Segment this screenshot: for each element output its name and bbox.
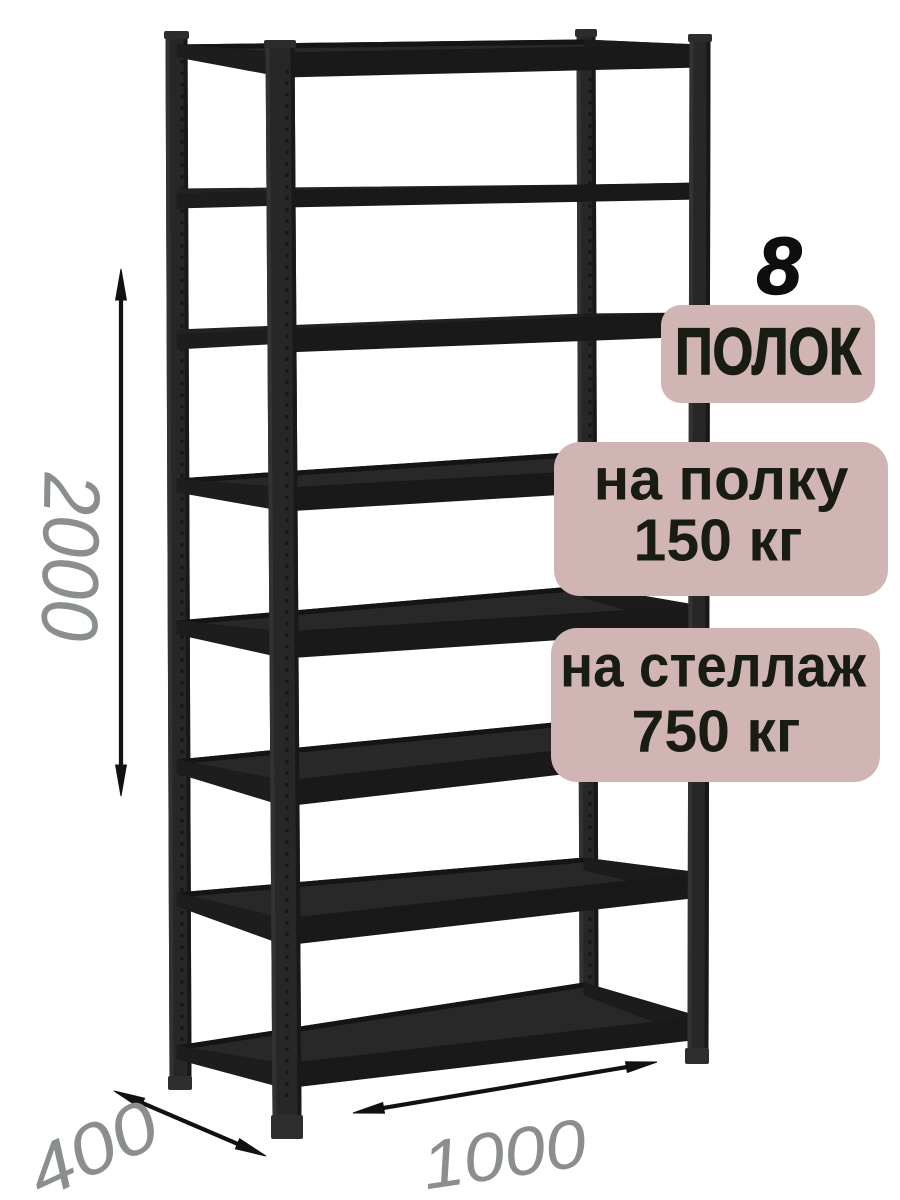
svg-text:400: 400: [15, 1086, 171, 1200]
svg-text:1000: 1000: [417, 1105, 592, 1200]
svg-text:2000: 2000: [25, 471, 117, 641]
